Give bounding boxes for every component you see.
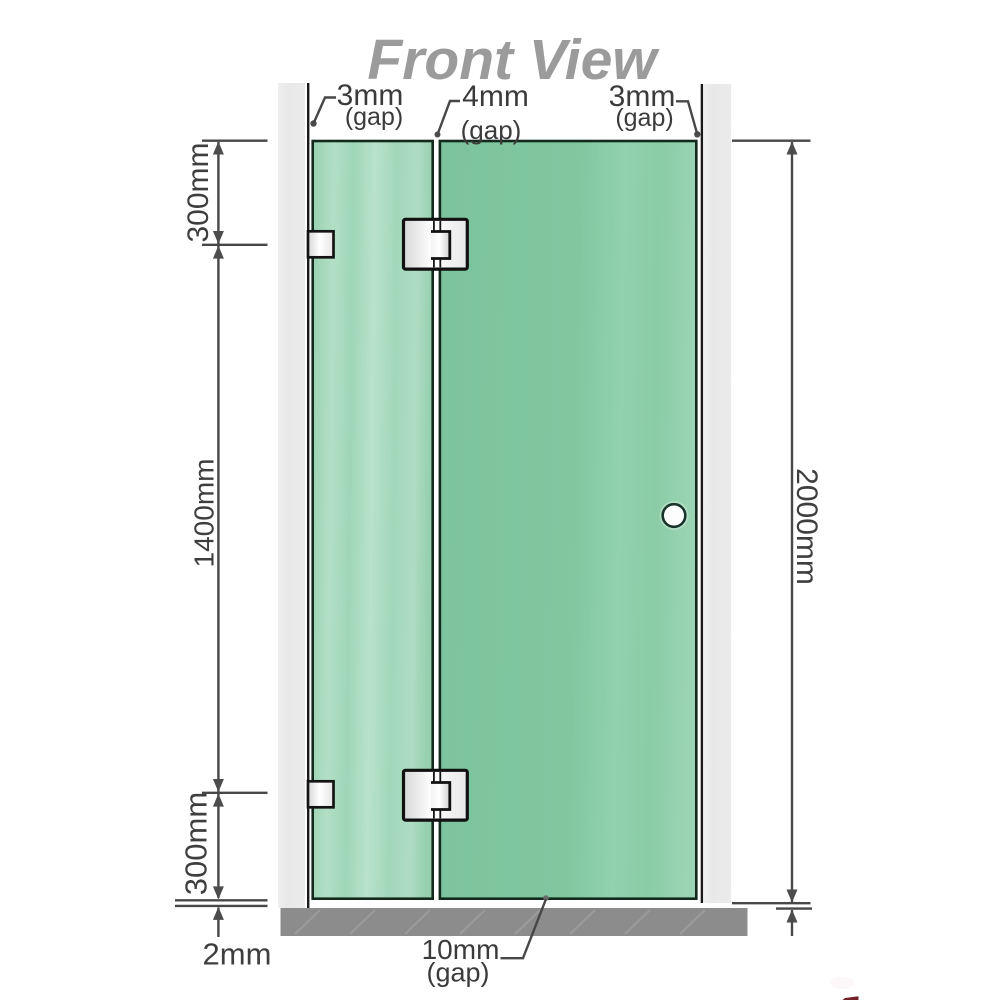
svg-text:(gap): (gap) xyxy=(615,104,673,132)
svg-text:(gap): (gap) xyxy=(345,103,403,131)
svg-text:2000mm: 2000mm xyxy=(790,468,823,585)
svg-text:4mm: 4mm xyxy=(462,80,529,113)
svg-text:(gap): (gap) xyxy=(461,115,522,145)
svg-text:300mm: 300mm xyxy=(182,142,215,242)
svg-text:2mm: 2mm xyxy=(203,937,272,972)
svg-text:1400mm: 1400mm xyxy=(189,459,220,568)
svg-text:(gap): (gap) xyxy=(426,958,489,988)
svg-text:300mm: 300mm xyxy=(179,792,214,895)
